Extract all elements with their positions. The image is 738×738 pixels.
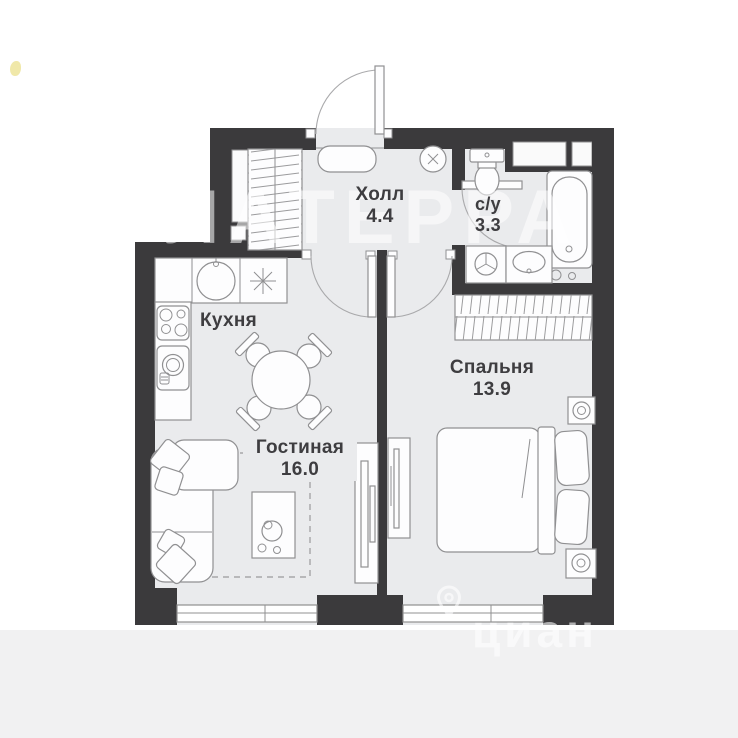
- bed: [437, 427, 590, 554]
- closet-niche: [232, 150, 248, 222]
- room-label-bathroom: с/у 3.3: [452, 194, 524, 236]
- wall-bottom-right: [543, 595, 614, 625]
- entrance-jamb-left: [306, 129, 315, 138]
- window-living: [177, 605, 317, 622]
- hall-closet: [248, 149, 302, 250]
- room-label-bedroom: Спальня 13.9: [437, 357, 547, 401]
- wall-closet-left: [210, 128, 232, 244]
- media-console-living: [355, 443, 378, 583]
- room-area: 16.0: [245, 459, 355, 481]
- pillow: [554, 489, 590, 545]
- room-area: 4.4: [330, 206, 430, 228]
- closet-niche-square: [231, 226, 246, 240]
- cian-pin-icon: [434, 584, 464, 623]
- room-area: 3.3: [452, 215, 524, 236]
- entrance-door-swing-arc: [316, 70, 380, 134]
- wall-corner-bottom-left: [135, 588, 177, 625]
- wall-hall-bottom-left: [248, 250, 308, 258]
- room-label-hall: Холл 4.4: [330, 184, 430, 228]
- tv-stand-bedroom: [388, 438, 410, 538]
- room-area: 13.9: [437, 379, 547, 401]
- room-label-living: Гостиная 16.0: [243, 437, 357, 481]
- pillow: [554, 430, 590, 486]
- room-name: Холл: [356, 184, 405, 205]
- entrance-jamb-right: [384, 129, 392, 138]
- entrance-door-leaf: [375, 66, 384, 134]
- wall-bathroom-bottom: [452, 283, 592, 295]
- room-label-kitchen: Кухня: [200, 310, 280, 332]
- ceiling-light-symbol: [420, 146, 446, 172]
- room-name: Кухня: [200, 310, 257, 331]
- bathtub: [547, 171, 592, 280]
- bedroom-wardrobe: [455, 295, 592, 340]
- hall-door-jamb-left: [302, 250, 311, 259]
- washing-machine: [466, 246, 506, 283]
- room-name: с/у: [475, 194, 501, 214]
- duct-niche-small: [572, 142, 592, 166]
- floor-plan-screenshot: ЛАТЕРРА Холл 4.4 с/у 3.3 Кухня Спальня 1…: [0, 0, 738, 738]
- nightstand: [566, 549, 596, 578]
- ac-unit: [568, 397, 595, 424]
- wall-bottom-middle: [317, 595, 403, 625]
- coffee-table: [252, 492, 295, 558]
- bottom-background-band: [0, 630, 738, 738]
- room-name: Гостиная: [256, 437, 344, 458]
- living-door-leaf: [368, 256, 376, 317]
- window-bedroom: [403, 605, 543, 622]
- bathroom-sink: [506, 246, 552, 283]
- room-name: Спальня: [450, 357, 534, 378]
- bedroom-door-leaf: [387, 256, 395, 317]
- floor-plan-canvas: [0, 0, 738, 738]
- table-top: [252, 351, 310, 409]
- hall-bench: [318, 146, 376, 172]
- duct-niche-large: [513, 142, 566, 166]
- hall-door-jamb-right: [446, 250, 455, 259]
